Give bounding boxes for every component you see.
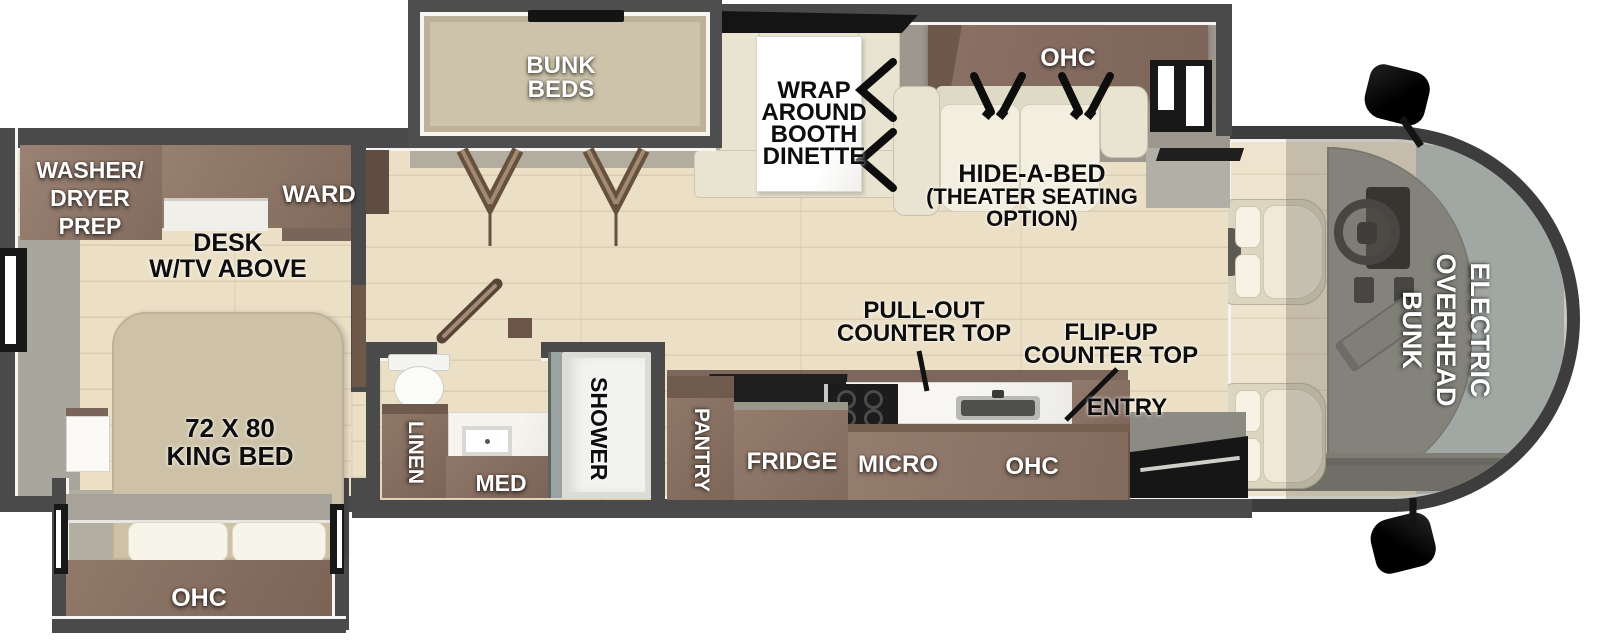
label-line: (THEATER SEATING [912, 186, 1152, 208]
micro-label: MICRO [828, 451, 968, 479]
bedroom-window-pane [5, 256, 16, 344]
hide-a-bed-label: HIDE-A-BED (THEATER SEATING OPTION) [912, 162, 1152, 230]
label-line: COUNTER TOP [1011, 344, 1211, 367]
bunk-landing [410, 148, 720, 168]
nightstand [66, 416, 110, 472]
bed-slide-wall-bottom [52, 616, 346, 633]
label-line: WASHER/ [15, 156, 165, 184]
label-line: BUNK [481, 54, 641, 78]
side-mirror-top-icon [1360, 61, 1433, 128]
burner-icon [864, 390, 883, 409]
driver-headrest [1235, 206, 1261, 248]
bed-slide-window-left-pane [56, 510, 61, 568]
dinette-label: WRAP AROUND BOOTH DINETTE [722, 80, 906, 168]
bathroom-wall-left [366, 342, 380, 512]
king-bed-label: 72 X 80 KING BED [105, 414, 355, 470]
label-line: OPTION) [912, 208, 1152, 230]
side-mirror-bottom-icon [1366, 509, 1439, 576]
pillow-right [232, 522, 326, 562]
kitchen-sink [956, 396, 1040, 420]
linen-label: LINEN [403, 404, 427, 500]
washer-dryer-prep-label: WASHER/ DRYER PREP [15, 156, 165, 240]
bedroom-ohc-label: OHC [119, 584, 279, 613]
label-line: W/TV ABOVE [108, 256, 348, 282]
flip-up-counter-label: FLIP-UP COUNTER TOP [1011, 321, 1211, 367]
label-line: OVERHEAD [1429, 220, 1463, 440]
vanity-sink [462, 426, 512, 456]
bathroom-door-opening [437, 342, 541, 361]
shower-label: SHOWER [585, 366, 612, 492]
label-line: BUNK [1395, 220, 1429, 440]
label-line: DESK [108, 230, 348, 256]
label-line: ELECTRIC [1463, 220, 1497, 440]
living-window-pane-right [1186, 66, 1204, 126]
label-line: 72 X 80 [105, 414, 355, 442]
living-ohc-label: OHC [1008, 44, 1128, 73]
med-label: MED [451, 470, 551, 497]
bathroom-wall-right [651, 342, 665, 512]
bunk-latch-icon [528, 10, 624, 22]
drain-icon [485, 439, 490, 444]
desk-surface [164, 198, 268, 231]
bed-slide-seam [66, 494, 332, 523]
entry-label: ENTRY [1067, 394, 1187, 422]
label-line: PULL-OUT [824, 299, 1024, 322]
ward-slide-door [352, 285, 366, 387]
label-line: COUNTER TOP [824, 322, 1024, 345]
desk-label: DESK W/TV ABOVE [108, 230, 348, 282]
window-sill-strip [1156, 148, 1244, 161]
kitchen-ohc-label: OHC [972, 453, 1092, 481]
bed-slide-window-right-pane [337, 510, 342, 568]
dinette-slide-wall-right [1216, 4, 1232, 136]
sofa-armrest-right [1100, 86, 1148, 158]
label-line: DINETTE [722, 146, 906, 168]
label-line: HIDE-A-BED [912, 162, 1152, 186]
step-edge [1140, 456, 1240, 472]
faucet-icon [992, 390, 1004, 398]
label-line: BEDS [481, 78, 641, 102]
overhead-bunk-label: ELECTRIC OVERHEAD BUNK [1393, 220, 1497, 440]
label-line: DRYER [15, 184, 165, 212]
label-line: KING BED [105, 442, 355, 470]
bath-wall-stub [508, 318, 532, 338]
sink-basin [961, 400, 1035, 416]
ward-label: WARD [259, 181, 379, 209]
living-window-pane-left [1158, 66, 1174, 110]
rv-floor-plan: WASHER/ DRYER PREP WARD DESK W/TV ABOVE … [0, 0, 1600, 641]
pantry-label: PANTRY [689, 396, 713, 504]
pull-out-counter-label: PULL-OUT COUNTER TOP [824, 299, 1024, 345]
driver-seat-pad [1235, 254, 1261, 298]
bunk-beds-label: BUNK BEDS [481, 54, 641, 102]
pillow-left [128, 522, 228, 562]
label-line: FLIP-UP [1011, 321, 1211, 344]
